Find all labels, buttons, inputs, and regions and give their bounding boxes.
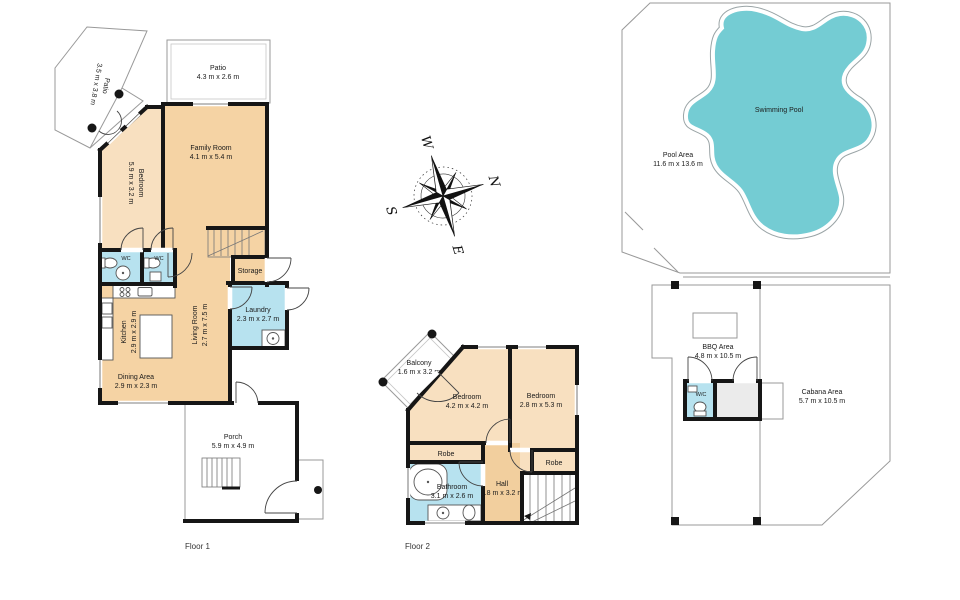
balcony-label: Balcony <box>407 360 432 367</box>
living-room-label: Living Room <box>192 305 199 344</box>
cabana-area-dims: 5.7 m x 10.5 m <box>799 398 845 405</box>
compass-south-label: S <box>382 205 399 218</box>
floor1-label: Floor 1 <box>185 542 210 551</box>
hall-label: Hall <box>496 481 509 488</box>
cabana-area-label: Cabana Area <box>802 389 843 396</box>
patio-post-2 <box>88 124 97 133</box>
bedroom1-dims: 4.2 m x 4.2 m <box>446 403 489 410</box>
dining-dims: 2.9 m x 2.3 m <box>115 383 158 390</box>
patio-side-label-group: Patio 3.5 m x 3.8 m <box>88 63 112 108</box>
wc2-label: WC <box>154 256 163 262</box>
pool-area-dims: 11.6 m x 13.6 m <box>653 161 703 168</box>
kitchen-appliance-1 <box>102 303 112 314</box>
bathroom-label: Bathroom <box>437 484 468 491</box>
floorplan-page: Swimming Pool Pool Area 11.6 m x 13.6 m … <box>0 0 960 600</box>
porch-label: Porch <box>224 434 242 441</box>
patio-side-label: Patio <box>101 77 111 94</box>
post-bottom-left <box>671 517 679 525</box>
floor2-stairs <box>522 473 577 523</box>
swimming-pool-label: Swimming Pool <box>755 107 804 114</box>
pool-area-label: Pool Area <box>663 152 693 159</box>
patio-post-1 <box>115 90 124 99</box>
robe2-label: Robe <box>546 460 563 467</box>
robe1-label: Robe <box>438 451 455 458</box>
patio-side-dims: 3.5 m x 3.8 m <box>88 63 102 106</box>
family-room-dims: 4.1 m x 5.4 m <box>190 154 233 161</box>
door-arc <box>733 357 757 381</box>
compass-star <box>391 144 495 248</box>
hall-dims: 1.8 m x 3.2 m <box>481 490 524 497</box>
compass-rose: N E S W <box>366 119 517 272</box>
compass-west-label: W <box>417 134 436 153</box>
laundry-label: Laundry <box>245 307 271 314</box>
porch-dims: 5.9 m x 4.9 m <box>212 443 255 450</box>
pool-deck-step-1 <box>625 212 643 230</box>
kitchen-label: Kitchen <box>121 320 128 343</box>
family-room-fill <box>163 106 267 257</box>
floor1: Patio 3.5 m x 3.8 m Patio 4.3 m x 2.6 m … <box>55 27 323 551</box>
bedroom2-label: Bedroom <box>527 393 556 400</box>
wc-toilet <box>694 402 706 412</box>
wc-side-bench <box>760 383 783 419</box>
post-bottom-right <box>753 517 761 525</box>
bbq-area-label: BBQ Area <box>702 344 733 351</box>
bbq-area-dims: 4.8 m x 10.5 m <box>695 353 741 360</box>
pool-water <box>686 9 874 237</box>
compass-east-label: E <box>448 243 465 258</box>
bbq-cabana-area: BBQ Area 4.8 m x 10.5 m Cabana Area 5.7 … <box>652 281 890 525</box>
kitchen-appliance-2 <box>102 317 112 328</box>
outdoor-wc-block: W/C <box>685 357 783 419</box>
bathroom-toilet <box>463 505 475 520</box>
family-room-label: Family Room <box>190 145 231 152</box>
patio-top-dims: 4.3 m x 2.6 m <box>197 74 240 81</box>
bathroom-dims: 3.1 m x 2.6 m <box>431 493 474 500</box>
porch-stairs <box>202 458 240 488</box>
patio-top-label: Patio <box>210 65 226 72</box>
dining-label: Dining Area <box>118 374 154 381</box>
post-top-left <box>671 281 679 289</box>
floor2: Balcony 1.6 m x 3.2 m <box>379 330 578 552</box>
porch-post <box>314 486 322 494</box>
laundry-fixtures <box>262 330 285 347</box>
balcony-post-1 <box>428 330 437 339</box>
floor2-label: Floor 2 <box>405 542 430 551</box>
bbq-bench <box>693 313 737 338</box>
floor1-patio-top: Patio 4.3 m x 2.6 m <box>167 40 270 103</box>
kitchen-dims: 2.9 m x 2.9 m <box>131 311 138 354</box>
balcony-post-2 <box>379 378 388 387</box>
floor1-porch: Porch 5.9 m x 4.9 m <box>185 404 323 521</box>
bedroom-label: Bedroom <box>137 169 144 198</box>
wc2-sink <box>150 272 161 281</box>
post-top-right <box>753 281 761 289</box>
door-arc <box>688 357 712 381</box>
bedroom1-label: Bedroom <box>453 394 482 401</box>
wc1-label: WC <box>121 256 130 262</box>
laundry-dims: 2.3 m x 2.7 m <box>237 316 280 323</box>
bedroom-dims: 5.9 m x 3.2 m <box>127 162 134 205</box>
floorplan-canvas: Swimming Pool Pool Area 11.6 m x 13.6 m … <box>0 0 960 600</box>
pool-area: Swimming Pool Pool Area 11.6 m x 13.6 m <box>622 3 890 277</box>
kitchen-island <box>140 315 172 358</box>
storage-label: Storage <box>238 268 263 275</box>
bedroom2-dims: 2.8 m x 5.3 m <box>520 402 563 409</box>
wc-toilet-tank <box>694 411 706 416</box>
living-room-dims: 2.7 m x 7.5 m <box>202 304 209 347</box>
lobby-fill <box>175 250 230 286</box>
outdoor-wc-label: W/C <box>696 392 707 398</box>
kitchen-sink <box>138 288 152 297</box>
swimming-pool <box>686 9 874 237</box>
compass-north-label: N <box>484 173 502 190</box>
